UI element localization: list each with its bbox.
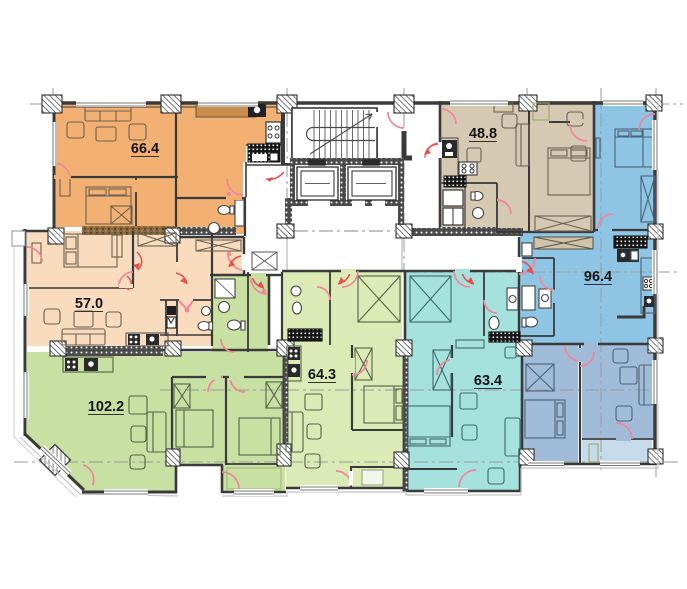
- svg-text:102.2: 102.2: [88, 399, 124, 415]
- svg-text:63.4: 63.4: [474, 373, 502, 389]
- svg-text:57.0: 57.0: [75, 296, 103, 312]
- svg-text:64.3: 64.3: [308, 367, 336, 383]
- svg-text:66.4: 66.4: [131, 141, 159, 157]
- svg-text:48.8: 48.8: [469, 126, 497, 142]
- svg-text:96.4: 96.4: [584, 269, 612, 285]
